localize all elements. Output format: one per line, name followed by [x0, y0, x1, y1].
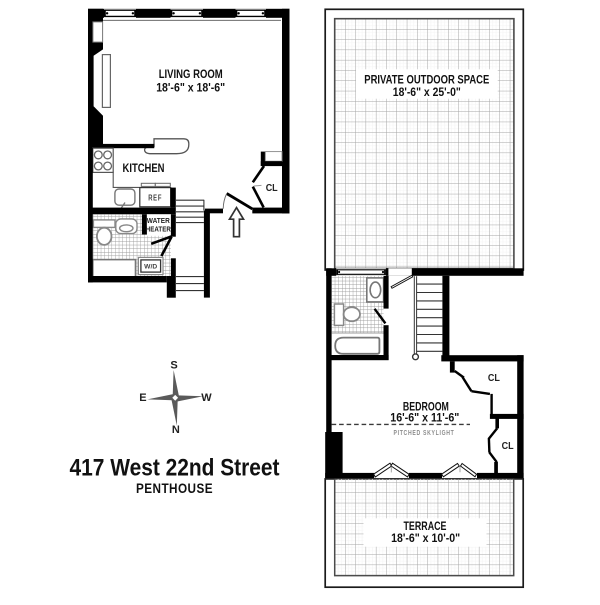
- svg-text:WATER: WATER: [147, 218, 170, 225]
- svg-text:PENTHOUSE: PENTHOUSE: [136, 481, 213, 496]
- svg-text:LIVING ROOM: LIVING ROOM: [159, 69, 223, 81]
- svg-text:18'-6" x 25'-0": 18'-6" x 25'-0": [393, 87, 461, 99]
- svg-text:PRIVATE OUTDOOR SPACE: PRIVATE OUTDOOR SPACE: [364, 74, 489, 86]
- svg-text:18'-6" x 18'-6": 18'-6" x 18'-6": [156, 82, 225, 94]
- svg-text:CL: CL: [502, 441, 514, 452]
- svg-text:CL: CL: [488, 373, 500, 384]
- svg-text:S: S: [170, 360, 177, 372]
- svg-text:E: E: [139, 392, 146, 404]
- svg-text:REF: REF: [148, 193, 162, 202]
- svg-text:KITCHEN: KITCHEN: [123, 163, 165, 175]
- svg-text:W/D: W/D: [144, 263, 157, 270]
- svg-text:417 West 22nd Street: 417 West 22nd Street: [70, 455, 280, 482]
- svg-text:W: W: [201, 392, 212, 404]
- svg-text:N: N: [172, 424, 180, 436]
- svg-text:18'-6" x 10'-0": 18'-6" x 10'-0": [391, 533, 460, 545]
- svg-text:TERRACE: TERRACE: [404, 521, 447, 533]
- svg-text:16'-6" x 11'-6": 16'-6" x 11'-6": [390, 413, 459, 425]
- svg-text:PITCHED SKYLIGHT: PITCHED SKYLIGHT: [394, 428, 455, 437]
- svg-text:CL: CL: [266, 183, 278, 194]
- svg-text:HEATER: HEATER: [146, 226, 171, 233]
